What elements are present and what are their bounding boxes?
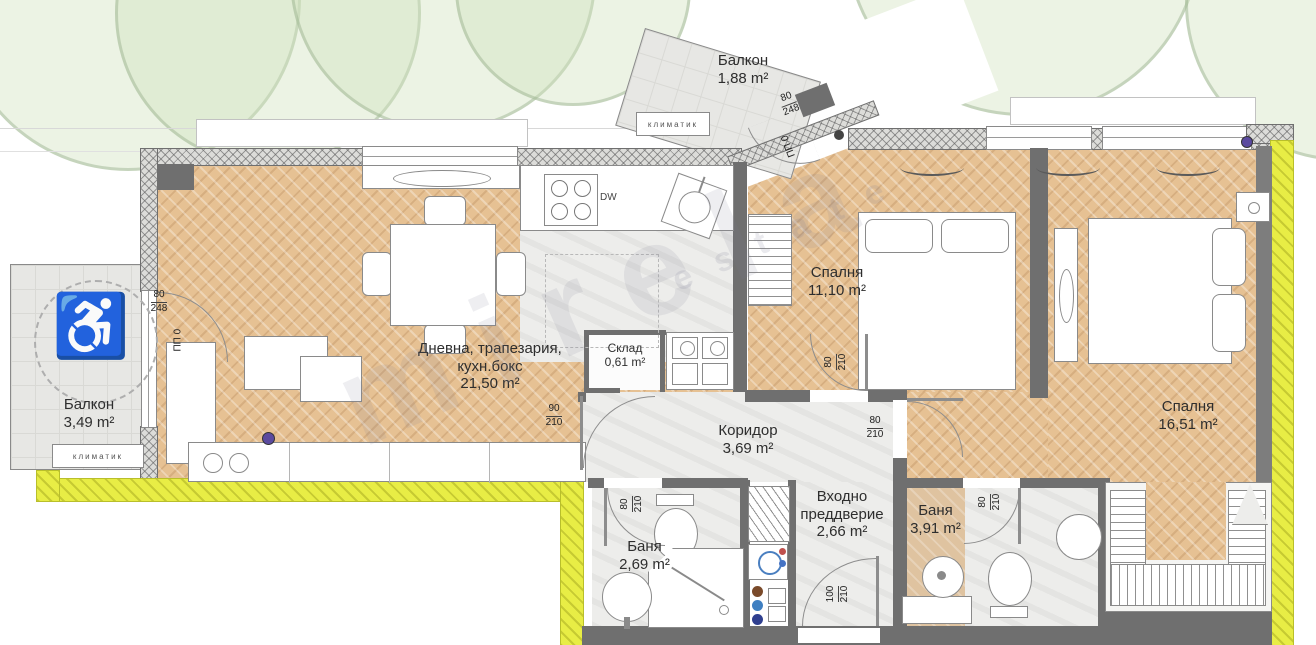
bedroom1-label: Спалня 11,10 m² — [762, 264, 912, 299]
corridor-label: Коридор 3,69 m² — [688, 422, 808, 457]
entry-label: Входно преддверие 2,66 m² — [778, 488, 906, 541]
dim-bedroom1-door: 80 210 — [824, 344, 848, 380]
wall-pillar — [152, 164, 194, 190]
pillow — [1212, 228, 1246, 286]
wheelchair-icon: ♿ — [52, 296, 129, 358]
door-leaf — [907, 398, 963, 401]
wall — [745, 390, 810, 402]
pillow — [941, 219, 1009, 253]
bed — [858, 212, 1016, 390]
utility-dot — [779, 560, 786, 567]
balcony-left-label: Балкон 3,49 m² — [28, 396, 150, 431]
wall — [1030, 148, 1048, 398]
utility-dot — [752, 586, 763, 597]
balcony-top-label: Балкон 1,88 m² — [678, 52, 808, 87]
boundary-wall-left-bath — [560, 478, 584, 645]
coffee-table — [300, 356, 362, 402]
washbasin-icon — [602, 572, 652, 622]
wall — [893, 478, 963, 488]
entry-door-gap — [798, 628, 880, 643]
appliance-icon — [672, 363, 698, 385]
utility-dot — [752, 600, 763, 611]
tv-icon — [393, 170, 491, 187]
railing — [1010, 97, 1256, 125]
nightstand — [1236, 192, 1270, 222]
socket-dot — [262, 432, 275, 445]
dim-bath-small-door: 80 210 — [620, 486, 644, 522]
dresser — [1054, 228, 1078, 362]
wall — [662, 478, 748, 488]
living-room-label: Дневна, трапезария, кухн.бокс 21,50 m² — [368, 340, 612, 393]
window — [986, 126, 1092, 150]
washbasin-icon — [1056, 514, 1102, 560]
dining-table — [390, 224, 496, 326]
utility-dot — [779, 548, 786, 555]
wall — [588, 478, 604, 488]
wall — [1020, 478, 1110, 488]
wardrobe — [1110, 564, 1266, 606]
toilet-icon — [990, 606, 1028, 618]
boundary-wall-right — [1270, 140, 1294, 645]
wall — [733, 162, 747, 392]
utility-dot — [752, 614, 763, 625]
sink-icon — [229, 453, 249, 473]
bed — [1088, 218, 1232, 364]
railing — [196, 119, 528, 147]
dim-balcony-left-type: ПП 0 — [173, 296, 184, 352]
pillow — [865, 219, 933, 253]
kitchen-appliance-nook — [666, 332, 734, 390]
bedroom2-label: Спалня 16,51 m² — [1108, 398, 1268, 433]
stove-icon — [544, 174, 598, 226]
door-leaf — [876, 556, 879, 626]
utility-shelf — [768, 588, 786, 604]
kitchen-cabinets — [188, 442, 586, 482]
washbasin-icon — [922, 556, 964, 598]
pillow — [1212, 294, 1246, 352]
toilet-icon — [988, 552, 1032, 606]
dining-chair — [496, 252, 526, 296]
floor-plan: DW — [0, 0, 1316, 645]
appliance-icon — [672, 337, 698, 359]
sink-icon — [203, 453, 223, 473]
kitchen-island-outline — [545, 254, 659, 348]
utility-shelf — [768, 606, 786, 622]
window — [1102, 126, 1252, 150]
wall — [140, 148, 158, 292]
door-gap — [810, 390, 868, 402]
boundary-wall-corner — [36, 470, 60, 502]
vanity-counter — [902, 596, 972, 624]
dishwasher-label: DW — [600, 192, 636, 203]
wall-bottom — [1098, 610, 1272, 626]
wardrobe-floor-tongue — [1146, 482, 1226, 560]
appliance-icon — [702, 363, 728, 385]
appliance-icon — [702, 337, 728, 359]
socket-dot — [1241, 136, 1253, 148]
wall-bottom — [582, 626, 1272, 645]
ac-unit-label: климатик — [52, 444, 144, 468]
dim-balcony-left-door: 80 248 — [142, 290, 176, 314]
dim-living-door: 90 210 — [536, 404, 572, 428]
bath-large-label: Баня 3,91 m² — [888, 502, 983, 537]
ac-unit-label: климатик — [636, 112, 710, 136]
door-gap — [893, 400, 907, 458]
socket-dot — [834, 130, 844, 140]
dining-chair — [424, 196, 466, 226]
dining-chair — [362, 252, 392, 296]
sideboard — [362, 165, 520, 189]
dim-entry-door: 100 210 — [826, 574, 850, 614]
wall — [893, 392, 907, 400]
storage-label: Склад 0,61 m² — [584, 342, 666, 370]
mirror-icon — [1059, 269, 1074, 323]
dim-bedroom2-door: 80 210 — [858, 416, 892, 440]
bath-small-label: Баня 2,69 m² — [592, 538, 697, 573]
